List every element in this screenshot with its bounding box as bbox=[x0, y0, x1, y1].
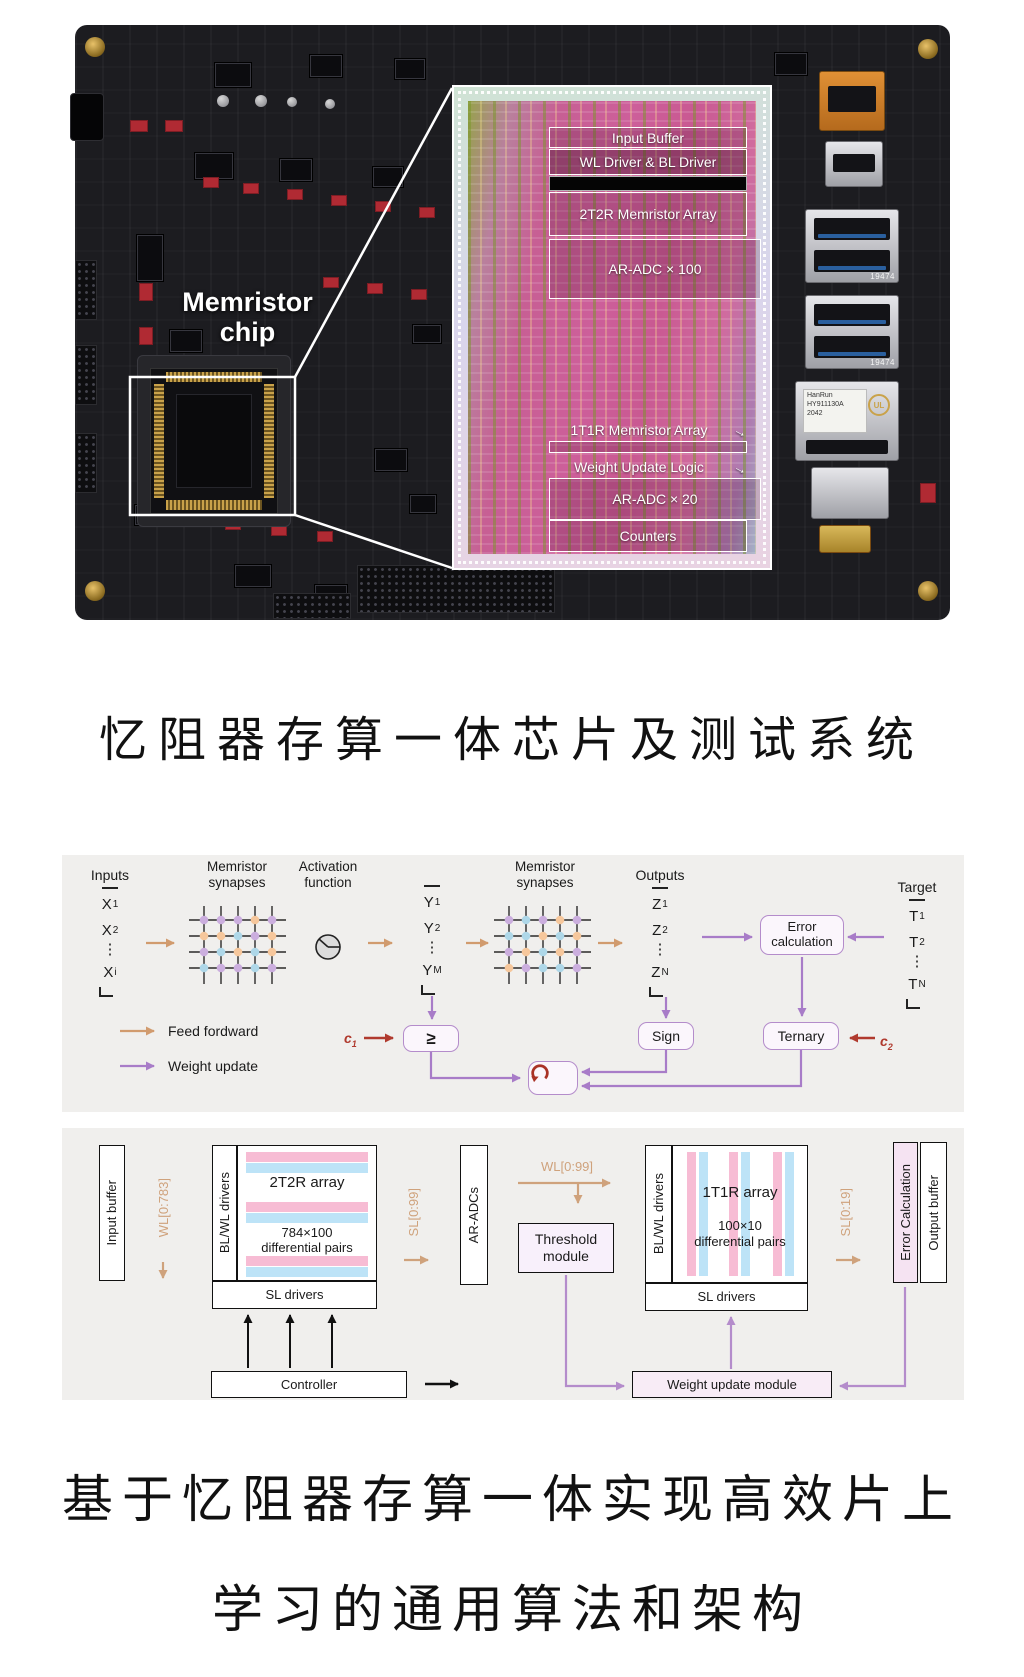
1t1r-array-title: 1T1R array bbox=[673, 1184, 807, 1202]
target-vector: Target T1 T2 ⋮ TN bbox=[887, 879, 947, 1009]
caption-line-1: 基于忆阻器存算一体实现高效片上 bbox=[0, 1458, 1024, 1532]
screw-icon bbox=[918, 581, 938, 601]
output-z1: Z1 bbox=[652, 891, 668, 917]
wl-0-783-label: WL[0:783] bbox=[152, 1156, 174, 1260]
input-buffer-box: Input buffer bbox=[99, 1145, 125, 1281]
metal-can bbox=[811, 467, 889, 519]
input-buffer-label: Input buffer bbox=[104, 1180, 120, 1246]
hidden-y2: Y2 bbox=[424, 915, 441, 941]
vector-bracket bbox=[906, 999, 920, 1009]
hidden-ym: YM bbox=[422, 957, 441, 983]
target-t2: T2 bbox=[909, 929, 925, 955]
pin-header bbox=[75, 260, 97, 320]
pcb-component bbox=[243, 183, 259, 194]
hdmi-port bbox=[825, 141, 883, 187]
die-box-input-buffer: Input Buffer bbox=[549, 127, 747, 148]
pcb-component bbox=[413, 325, 441, 343]
output-buffer-box: Output buffer bbox=[920, 1142, 947, 1283]
usb-stack-top: 19474 bbox=[805, 209, 899, 283]
pcb-component bbox=[395, 59, 425, 79]
gold-connector bbox=[819, 525, 871, 553]
legend-feed-forward: Feed fordward bbox=[168, 1023, 258, 1039]
pcb-component bbox=[287, 97, 297, 107]
die-label-weight-update-logic: Weight Update Logic bbox=[549, 458, 729, 476]
pin-header bbox=[75, 433, 97, 493]
nn-algorithm-panel: Inputs X1 X2 ⋮ Xi Y1 Y2 ⋮ YM Outputs Z1 … bbox=[62, 855, 964, 1112]
legend-weight-update: Weight update bbox=[168, 1058, 258, 1074]
memristor-chip-socket bbox=[137, 355, 291, 527]
ellipsis: ⋮ bbox=[103, 943, 118, 959]
loop-arrow-icon bbox=[529, 1062, 551, 1084]
output-z2: Z2 bbox=[652, 917, 668, 943]
vector-bracket bbox=[99, 987, 113, 997]
chip-die-inset: Input Buffer WL Driver & BL Driver 2T2R … bbox=[452, 85, 772, 570]
caption-line-2: 学习的通用算法和架构 bbox=[0, 1568, 1024, 1642]
1t1r-array-box: 1T1R array 100×10 differential pairs bbox=[672, 1145, 808, 1283]
bl-wl-drivers-left-box: BL/WL drivers bbox=[212, 1145, 237, 1281]
threshold-box: ≥ bbox=[403, 1025, 459, 1052]
hidden-vector: Y1 Y2 ⋮ YM bbox=[402, 881, 462, 995]
outputs-label: Outputs bbox=[635, 867, 684, 883]
2t2r-array-size: 784×100 bbox=[238, 1225, 376, 1241]
power-jack bbox=[70, 93, 104, 141]
ellipsis: ⋮ bbox=[653, 943, 668, 959]
ethernet-brand: HanRun bbox=[807, 392, 863, 401]
pcb-component bbox=[375, 201, 391, 212]
1t1r-array-size: 100×10 bbox=[673, 1218, 807, 1234]
pcb-component bbox=[139, 283, 153, 301]
sign-box: Sign bbox=[638, 1022, 694, 1050]
bl-wl-drivers-right-label: BL/WL drivers bbox=[651, 1173, 667, 1254]
target-label: Target bbox=[898, 879, 937, 895]
pin-header bbox=[357, 565, 555, 613]
die-dark-bar bbox=[549, 176, 747, 191]
target-t1: T1 bbox=[909, 903, 925, 929]
input-x1: X1 bbox=[102, 891, 119, 917]
die-box-2t2r-array: 2T2R Memristor Array bbox=[549, 192, 747, 236]
pcb-component bbox=[325, 99, 335, 109]
pin-header bbox=[273, 593, 351, 619]
ellipsis: ⋮ bbox=[910, 955, 925, 971]
screw-icon bbox=[85, 37, 105, 57]
pcb-component bbox=[331, 195, 347, 206]
ternary-box: Ternary bbox=[763, 1022, 839, 1050]
bl-wl-drivers-right-box: BL/WL drivers bbox=[645, 1145, 672, 1283]
section-title-chinese: 忆阻器存算一体芯片及测试系统 bbox=[0, 700, 1024, 770]
sl-drivers-right-box: SL drivers bbox=[645, 1283, 808, 1311]
sl-0-19-label: SL[0:19] bbox=[834, 1170, 856, 1254]
memristor-synapse-grid-2 bbox=[494, 906, 591, 984]
activation-label: Activation function bbox=[278, 859, 378, 891]
weight-update-module-box: Weight update module bbox=[632, 1371, 832, 1398]
2t2r-array-box: 2T2R array 784×100 differential pairs bbox=[237, 1145, 377, 1281]
ethernet-sticker: HanRun HY911130A 2042 bbox=[803, 389, 867, 433]
pcb-component bbox=[410, 495, 436, 513]
die-box-counters: Counters bbox=[549, 520, 747, 552]
input-xi: Xi bbox=[103, 959, 116, 985]
synapses-label-1: Memristor synapses bbox=[187, 859, 287, 891]
input-x2: X2 bbox=[102, 917, 119, 943]
vector-bracket bbox=[649, 987, 663, 997]
controller-box: Controller bbox=[211, 1371, 407, 1398]
activation-function-icon bbox=[316, 935, 340, 959]
pin-header bbox=[75, 345, 97, 405]
output-buffer-label: Output buffer bbox=[926, 1175, 942, 1251]
pcb-component bbox=[287, 189, 303, 200]
vector-bracket bbox=[421, 985, 435, 995]
pcb-component bbox=[255, 95, 267, 107]
constant-c2: c2 bbox=[880, 1033, 893, 1052]
architecture-panel: Input buffer WL[0:783] BL/WL drivers 2T2… bbox=[62, 1128, 964, 1400]
pcb-component bbox=[203, 177, 219, 188]
output-zn: ZN bbox=[651, 959, 668, 985]
pcb-component bbox=[130, 120, 148, 132]
screw-icon bbox=[85, 581, 105, 601]
screw-icon bbox=[918, 39, 938, 59]
1t1r-array-pairs: differential pairs bbox=[673, 1234, 807, 1250]
arch-connections bbox=[62, 1128, 964, 1400]
pcb-component bbox=[375, 449, 407, 471]
inputs-label: Inputs bbox=[91, 867, 129, 883]
pcb-component bbox=[217, 95, 229, 107]
die-box-ar-adc-20: AR-ADC × 20 bbox=[549, 478, 761, 520]
pcb-component bbox=[137, 235, 163, 281]
ul-mark-icon: UL bbox=[868, 394, 890, 416]
synapses-label-2: Memristor synapses bbox=[495, 859, 595, 891]
vector-bracket bbox=[102, 887, 118, 889]
usb-marking: 19474 bbox=[870, 358, 895, 367]
sl-drivers-left-box: SL drivers bbox=[212, 1281, 377, 1309]
pcb-component bbox=[165, 120, 183, 132]
sl-0-99-label: SL[0:99] bbox=[402, 1170, 424, 1254]
2t2r-array-title: 2T2R array bbox=[238, 1174, 376, 1192]
threshold-module-box: Threshold module bbox=[518, 1223, 614, 1273]
pcb-component bbox=[310, 55, 342, 77]
usb-stack-bottom: 19474 bbox=[805, 295, 899, 369]
bl-wl-drivers-left-label: BL/WL drivers bbox=[217, 1172, 233, 1253]
target-tn: TN bbox=[908, 971, 925, 997]
vector-bracket bbox=[909, 899, 925, 901]
ellipsis: ⋮ bbox=[425, 941, 440, 957]
vector-bracket bbox=[652, 887, 668, 889]
usb-marking: 19474 bbox=[870, 272, 895, 281]
pcb-component bbox=[411, 289, 427, 300]
die-label-1t1r-array: 1T1R Memristor Array bbox=[549, 421, 729, 439]
pcb-component bbox=[920, 483, 936, 503]
constant-c1: c1 bbox=[344, 1030, 357, 1049]
inputs-vector: Inputs X1 X2 ⋮ Xi bbox=[80, 867, 140, 997]
usb-port-orange bbox=[819, 71, 885, 131]
die-box-wl-bl-driver: WL Driver & BL Driver bbox=[549, 149, 747, 175]
update-loop-box bbox=[528, 1061, 578, 1095]
pcb-component bbox=[280, 159, 312, 181]
figure-canvas: 19474 19474 HanRun HY911130A 2042 UL bbox=[0, 0, 1024, 1677]
ethernet-port: HanRun HY911130A 2042 UL bbox=[795, 381, 899, 461]
hidden-y1: Y1 bbox=[424, 889, 441, 915]
memristor-synapse-grid-1 bbox=[189, 906, 286, 984]
vector-bracket bbox=[424, 885, 440, 887]
error-calculation-box-arch: Error Calculation bbox=[893, 1142, 918, 1283]
2t2r-array-pairs: differential pairs bbox=[238, 1240, 376, 1256]
pcb-component bbox=[195, 153, 233, 179]
pcb-component bbox=[373, 167, 403, 187]
pcb-component bbox=[215, 63, 251, 87]
pcb-component bbox=[367, 283, 383, 294]
pcb-board-photo: 19474 19474 HanRun HY911130A 2042 UL bbox=[75, 25, 950, 620]
pcb-component bbox=[317, 531, 333, 542]
error-calculation-label: Error Calculation bbox=[898, 1164, 914, 1261]
pcb-component bbox=[419, 207, 435, 218]
pcb-component bbox=[235, 565, 271, 587]
outputs-vector: Outputs Z1 Z2 ⋮ ZN bbox=[630, 867, 690, 997]
ar-adcs-label: AR-ADCs bbox=[466, 1187, 482, 1243]
die-box-ar-adc-100: AR-ADC × 100 bbox=[549, 239, 761, 299]
memristor-chip-label: Memristor chip bbox=[170, 287, 325, 347]
pcb-component bbox=[775, 53, 807, 75]
die-box-1t1r-strip bbox=[549, 441, 747, 453]
pcb-component bbox=[323, 277, 339, 288]
ethernet-part: HY911130A bbox=[807, 401, 863, 410]
ethernet-date: 2042 bbox=[807, 410, 863, 419]
ar-adcs-box: AR-ADCs bbox=[460, 1145, 488, 1285]
pcb-component bbox=[139, 327, 153, 345]
error-calculation-box: Error calculation bbox=[760, 915, 844, 955]
wl-0-99-label: WL[0:99] bbox=[524, 1158, 610, 1174]
